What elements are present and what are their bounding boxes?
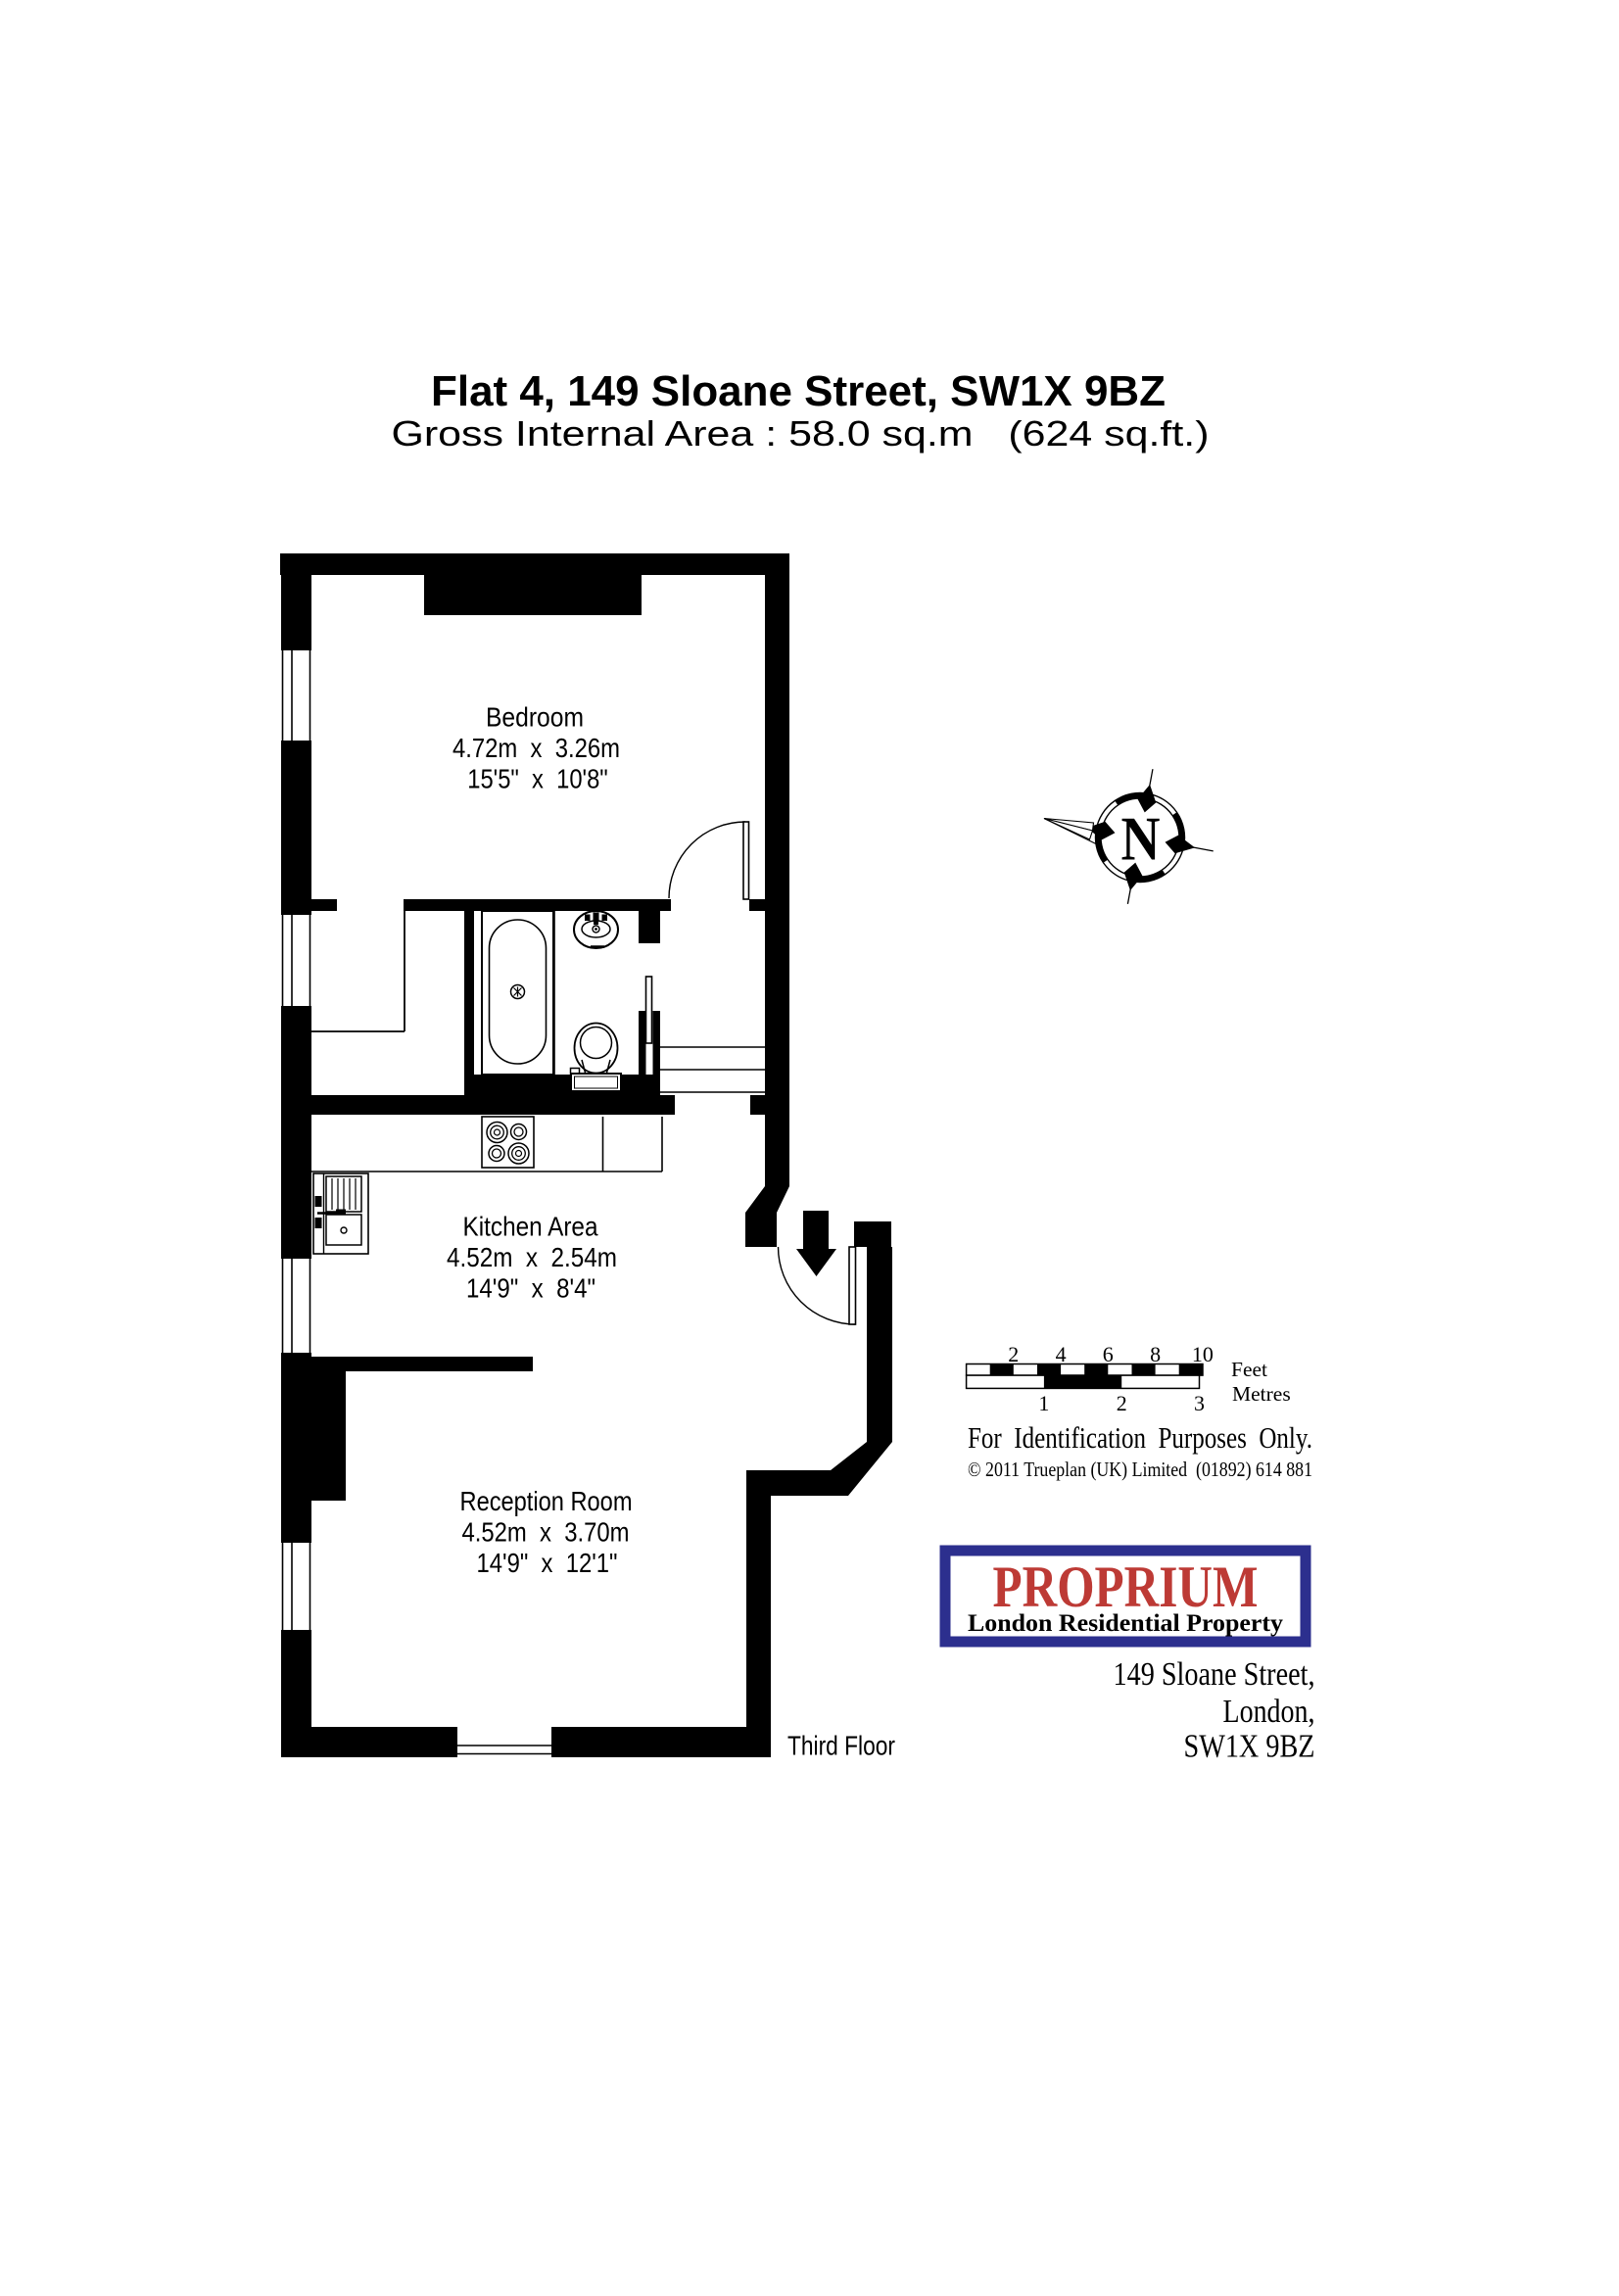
svg-text:Flat 4, 149 Sloane Street, SW1: Flat 4, 149 Sloane Street, SW1X 9BZ [431, 368, 1166, 415]
svg-text:6: 6 [1103, 1342, 1114, 1366]
svg-text:Reception Room: Reception Room [460, 1486, 633, 1516]
svg-text:4.52m x 3.70m: 4.52m x 3.70m [462, 1517, 630, 1548]
svg-text:Kitchen Area: Kitchen Area [463, 1212, 599, 1242]
svg-text:4: 4 [1056, 1342, 1067, 1366]
svg-text:Feet: Feet [1231, 1358, 1267, 1381]
svg-text:2: 2 [1117, 1391, 1127, 1415]
svg-text:10: 10 [1192, 1342, 1214, 1366]
svg-text:4.52m x 2.54m: 4.52m x 2.54m [447, 1242, 617, 1272]
svg-text:Third Floor: Third Floor [787, 1731, 895, 1761]
svg-text:N: N [1121, 805, 1161, 874]
svg-text:4.72m x 3.26m: 4.72m x 3.26m [452, 733, 620, 763]
svg-text:15'5" x 10'8": 15'5" x 10'8" [467, 764, 608, 794]
svg-text:Gross Internal Area : 58.0 sq.: Gross Internal Area : 58.0 sq.m (624 sq.… [392, 413, 1210, 454]
svg-text:Bedroom: Bedroom [486, 702, 584, 733]
svg-text:© 2011 Trueplan (UK) Limited: © 2011 Trueplan (UK) Limited (01892) 614… [968, 1458, 1312, 1481]
svg-text:149 Sloane Street,: 149 Sloane Street, [1114, 1656, 1315, 1693]
svg-text:London,: London, [1223, 1694, 1315, 1730]
svg-text:SW1X 9BZ: SW1X 9BZ [1184, 1729, 1315, 1765]
svg-text:2: 2 [1008, 1342, 1019, 1366]
svg-text:8: 8 [1150, 1342, 1161, 1366]
svg-text:London Residential Property: London Residential Property [968, 1608, 1283, 1637]
svg-text:Metres: Metres [1232, 1382, 1291, 1406]
svg-text:For Identification Purposes: For Identification Purposes Only. [968, 1420, 1312, 1455]
svg-text:14'9" x 8'4": 14'9" x 8'4" [466, 1273, 595, 1304]
svg-text:1: 1 [1038, 1391, 1049, 1415]
svg-text:3: 3 [1194, 1391, 1205, 1415]
svg-text:14'9" x 12'1": 14'9" x 12'1" [477, 1548, 618, 1578]
